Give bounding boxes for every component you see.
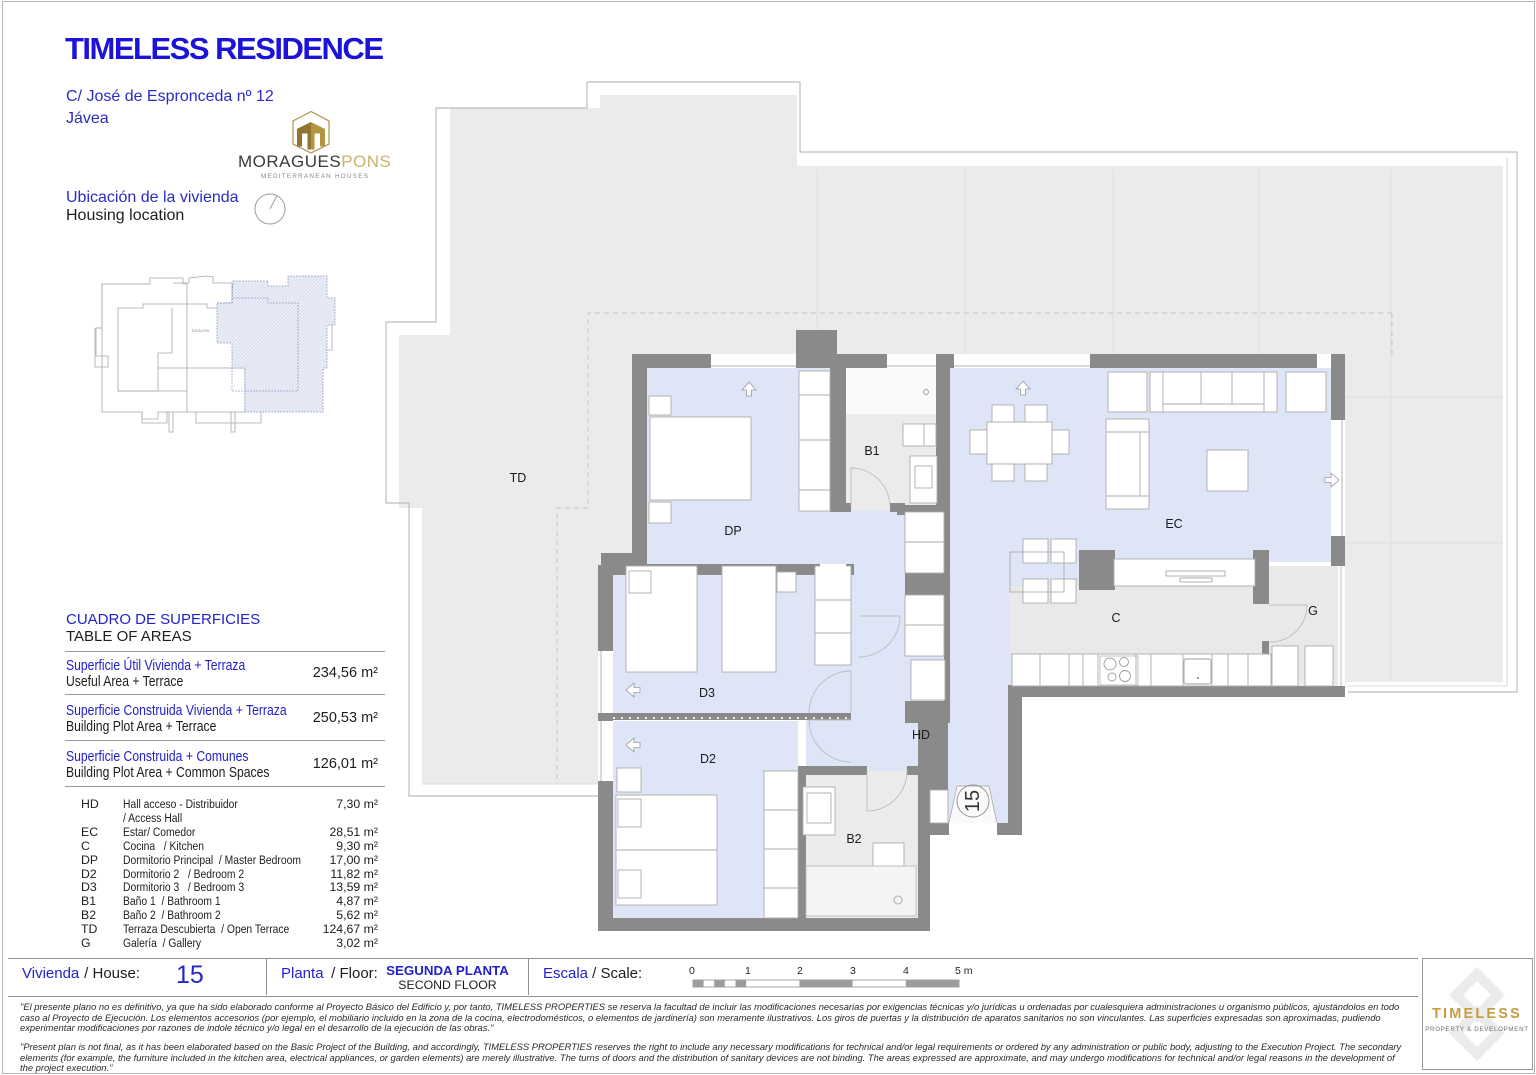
svg-text:ESCALERA: ESCALERA — [192, 329, 210, 333]
svg-text:5 m: 5 m — [955, 965, 973, 977]
svg-text:15: 15 — [962, 790, 984, 812]
svg-text:2: 2 — [797, 965, 803, 977]
svg-text:TD: TD — [510, 471, 527, 485]
svg-text:1: 1 — [745, 965, 751, 977]
svg-text:G: G — [1308, 604, 1318, 618]
svg-text:EC: EC — [1165, 517, 1182, 531]
svg-text:MEDITERRANEAN HOUSES: MEDITERRANEAN HOUSES — [261, 173, 369, 180]
svg-text:4: 4 — [903, 965, 909, 977]
svg-text:TIMELESS: TIMELESS — [1432, 1006, 1522, 1022]
svg-text:HD: HD — [912, 728, 930, 742]
svg-text:B1: B1 — [864, 444, 879, 458]
svg-text:0: 0 — [689, 965, 695, 977]
svg-text:DP: DP — [724, 524, 741, 538]
svg-text:3: 3 — [850, 965, 856, 977]
svg-text:B2: B2 — [846, 832, 861, 846]
svg-text:D3: D3 — [699, 686, 715, 700]
svg-text:D2: D2 — [700, 752, 716, 766]
svg-text:MORAGUESPONS: MORAGUESPONS — [238, 152, 391, 171]
svg-text:PROPERTY & DEVELOPMENT: PROPERTY & DEVELOPMENT — [1425, 1026, 1529, 1033]
svg-text:C: C — [1111, 611, 1120, 625]
